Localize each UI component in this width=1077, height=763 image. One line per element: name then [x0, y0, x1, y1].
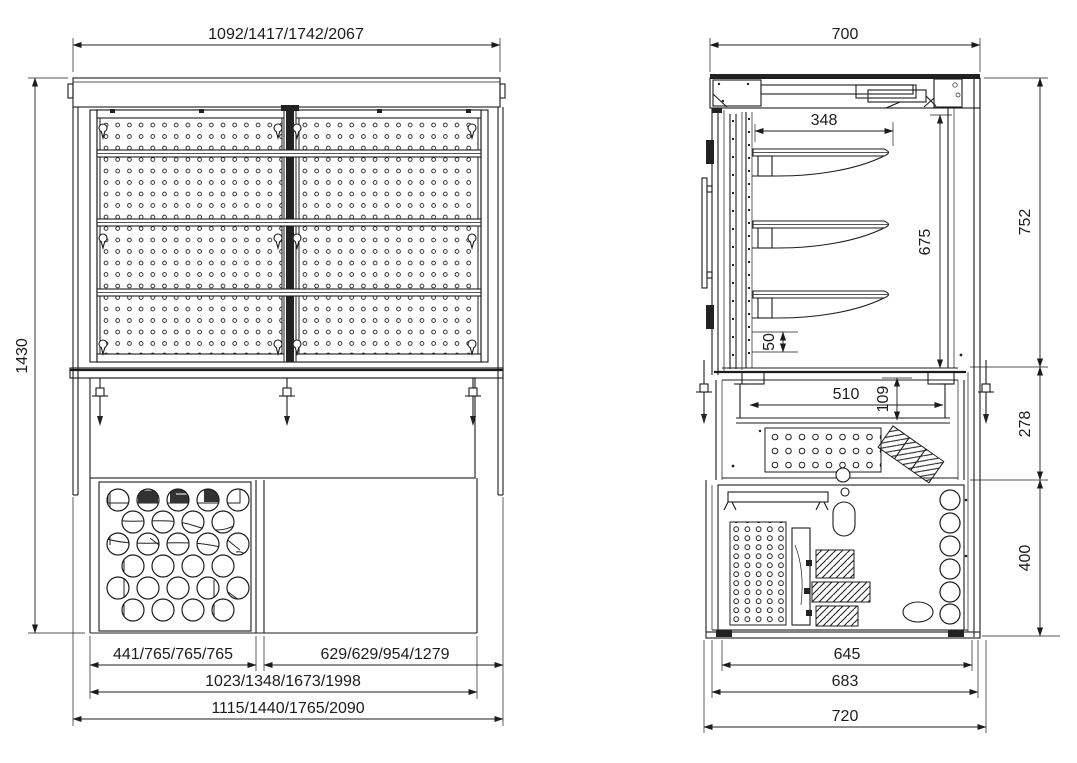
dim-interior-height: 675 [917, 229, 934, 256]
front-center-post [286, 110, 294, 362]
drawing-svg: 1092/1417/1742/2067 1430 441/765/765/765… [0, 0, 1077, 763]
dim-base-mid-depth: 683 [832, 673, 859, 690]
dim-height-display: 752 [1017, 209, 1034, 236]
side-door-hinge-top [706, 140, 714, 164]
dim-height-well: 278 [1017, 411, 1034, 438]
dim-front-base-right: 629/629/954/1279 [320, 646, 449, 663]
front-hanger-bolts [92, 378, 481, 426]
side-door-handle [702, 178, 707, 288]
compartment-oval-port [903, 602, 933, 622]
compartment-capsule [833, 502, 855, 536]
dim-front-height: 1430 [14, 338, 31, 374]
front-canopy-left-tab [68, 84, 73, 98]
technical-drawing: 1092/1417/1742/2067 1430 441/765/765/765… [0, 0, 1077, 763]
front-grille-holes [107, 489, 249, 621]
dim-height-base: 400 [1017, 545, 1034, 572]
side-display-rim [714, 368, 966, 384]
compartment-bracket [728, 492, 828, 502]
front-sill [70, 368, 503, 378]
dim-shelf-gap: 50 [761, 333, 778, 351]
dim-front-overall: 1115/1440/1765/2090 [211, 700, 364, 717]
dim-base-inner-depth: 645 [834, 646, 861, 663]
side-base-plate [706, 632, 980, 638]
side-glass-door [702, 108, 742, 375]
side-canopy-mechanism [713, 79, 962, 108]
dim-well-width: 510 [833, 386, 860, 403]
dim-shelf-depth: 348 [811, 112, 838, 129]
side-canopy [710, 78, 980, 108]
dim-front-base-left: 441/765/765/765 [113, 646, 233, 663]
well-perforated-tray [765, 428, 881, 472]
dim-well-height: 109 [875, 386, 892, 413]
side-door-hinge-bottom [706, 305, 714, 329]
side-shelves [752, 149, 889, 352]
side-shelf-standard [746, 112, 752, 368]
dim-side-top-depth: 700 [832, 26, 859, 43]
front-base [90, 478, 477, 633]
compressor-blocks [804, 550, 870, 626]
dim-front-top-width: 1092/1417/1742/2067 [208, 26, 364, 43]
front-canopy-right-tab [500, 84, 505, 98]
condenser-perforated [730, 522, 786, 625]
compartment-back-holes [940, 490, 960, 624]
side-view [696, 74, 994, 638]
well-fan-unit [878, 426, 944, 483]
side-machine-compartment [706, 480, 980, 638]
dim-overall-depth: 720 [832, 708, 859, 725]
front-view [68, 78, 505, 633]
front-perforated-panels [97, 105, 481, 362]
dim-front-base-inner: 1023/1348/1673/1998 [205, 673, 361, 690]
